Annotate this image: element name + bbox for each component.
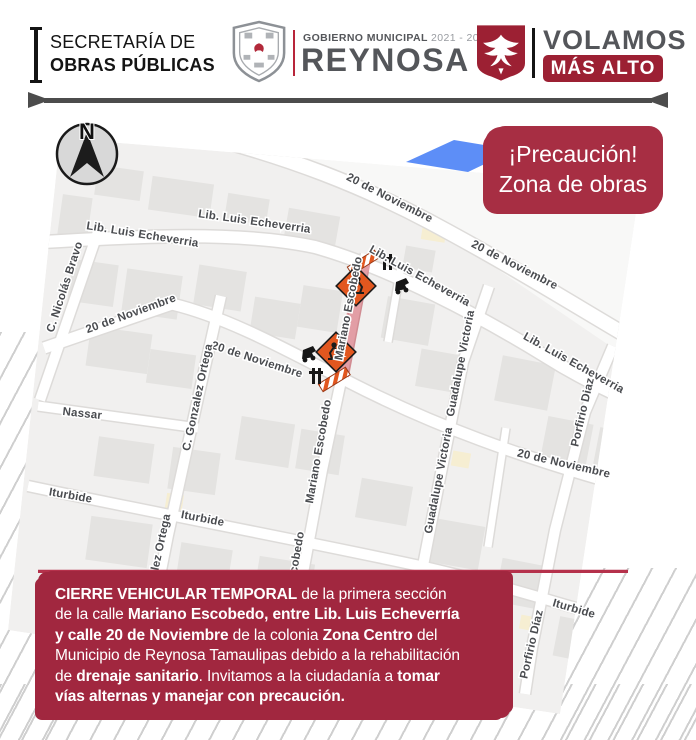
compass-n-label: N xyxy=(79,119,95,144)
notice-text-line: Municipio de Reynosa Tamaulipas debido a… xyxy=(55,646,500,666)
announcement-graphic: { "header": { "department": {"line1": "S… xyxy=(0,0,696,740)
department-line1: SECRETARÍA DE xyxy=(50,31,215,54)
slogan-word: VOLAMOS xyxy=(543,25,687,56)
department-line2: OBRAS PÚBLICAS xyxy=(50,54,215,77)
notice-text-line: CIERRE VEHICULAR TEMPORAL de la primera … xyxy=(55,585,500,605)
caution-badge: ¡Precaución! Zona de obras xyxy=(485,127,661,213)
eagle-shield-icon xyxy=(477,25,525,81)
caution-line1: ¡Precaución! xyxy=(508,140,637,170)
header-divider xyxy=(28,92,668,109)
closure-notice: CIERRE VEHICULAR TEMPORAL de la primera … xyxy=(38,572,510,718)
slogan-separator xyxy=(532,28,535,78)
notice-text-line: y calle 20 de Noviembre de la colonia Zo… xyxy=(55,626,500,646)
department-accent-bar xyxy=(34,29,38,81)
municipal-seal-icon xyxy=(230,20,288,84)
department-title: SECRETARÍA DE OBRAS PÚBLICAS xyxy=(50,31,215,78)
slogan-tagline: MÁS ALTO xyxy=(543,55,663,82)
notice-text-line: de drenaje sanitario. Invitamos a la ciu… xyxy=(55,667,500,687)
notice-text-line: vías alternas y manejar con precaución. xyxy=(55,687,500,707)
notice-text-line: de la calle Mariano Escobedo, entre Lib.… xyxy=(55,605,500,625)
caution-line2: Zona de obras xyxy=(499,170,647,200)
seal-separator xyxy=(293,30,295,76)
north-arrow: N xyxy=(57,119,117,184)
city-name: REYNOSA xyxy=(301,42,470,79)
divider-line xyxy=(44,98,652,103)
divider-right-arrow xyxy=(646,92,668,108)
